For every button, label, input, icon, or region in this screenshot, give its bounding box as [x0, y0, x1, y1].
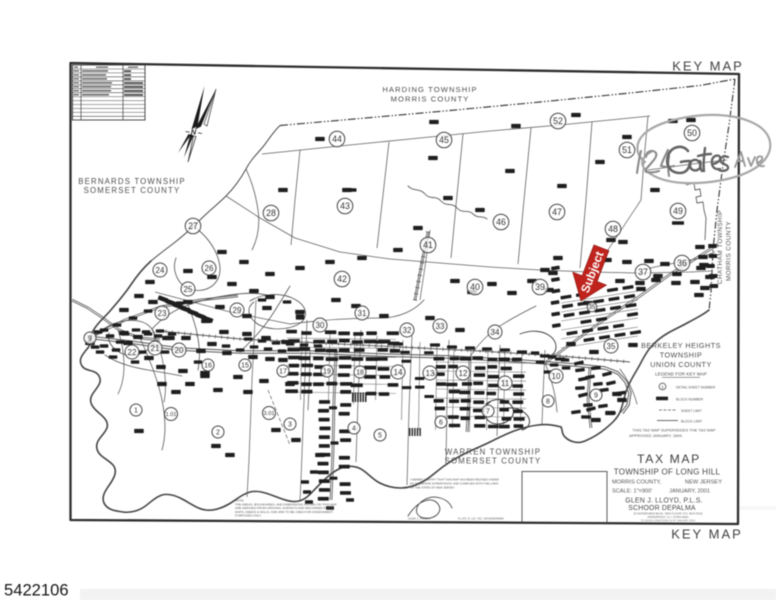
svg-text:10: 10	[552, 372, 561, 381]
svg-text:MORRIS COUNTY,: MORRIS COUNTY,	[612, 480, 662, 486]
svg-text:19: 19	[323, 369, 331, 376]
svg-text:21: 21	[151, 344, 160, 353]
svg-text:5: 5	[378, 433, 382, 440]
svg-text:1: 1	[134, 408, 138, 415]
svg-text:GLEN J. LLOYD, P.L.S.: GLEN J. LLOYD, P.L.S.	[625, 497, 703, 504]
svg-text:33: 33	[436, 322, 445, 331]
svg-text:SCALE: 1"=900': SCALE: 1"=900'	[612, 488, 652, 494]
svg-text:31: 31	[358, 309, 367, 318]
svg-text:PURPOSES ONLY.: PURPOSES ONLY.	[235, 514, 262, 518]
svg-text:30: 30	[316, 321, 325, 330]
svg-text:28: 28	[266, 208, 276, 218]
svg-text:52: 52	[553, 116, 563, 126]
svg-text:4: 4	[352, 426, 356, 433]
svg-text:APPROVED JANUARY, 1894.: APPROVED JANUARY, 1894.	[629, 433, 683, 438]
svg-text:23: 23	[158, 309, 167, 318]
svg-text:11: 11	[501, 379, 510, 388]
svg-text:SOMERSET COUNTY: SOMERSET COUNTY	[445, 457, 542, 466]
svg-text:JANUARY, 2001: JANUARY, 2001	[669, 488, 710, 494]
svg-text:GLEN J. PARENT: GLEN J. PARENT	[408, 517, 431, 521]
svg-text:14: 14	[394, 368, 403, 377]
svg-text:18: 18	[356, 370, 364, 377]
svg-text:26: 26	[205, 264, 214, 273]
svg-text:40: 40	[470, 282, 480, 292]
svg-text:WARREN TOWNSHIP: WARREN TOWNSHIP	[445, 448, 541, 457]
svg-text:BERKELEY HEIGHTS: BERKELEY HEIGHTS	[641, 341, 721, 350]
svg-text:LEGEND FOR KEY MAP: LEGEND FOR KEY MAP	[655, 372, 707, 377]
svg-text:8: 8	[546, 399, 550, 406]
svg-text:17: 17	[279, 369, 287, 376]
svg-text:36: 36	[677, 258, 687, 268]
svg-text:25: 25	[184, 285, 193, 294]
svg-text:KEY MAP: KEY MAP	[672, 59, 744, 74]
svg-text:45: 45	[439, 135, 449, 145]
svg-text:KEY MAP: KEY MAP	[671, 527, 743, 542]
svg-text:N: N	[191, 128, 197, 137]
svg-text:UNION COUNTY: UNION COUNTY	[650, 360, 712, 369]
svg-text:MORRIS COUNTY: MORRIS COUNTY	[391, 95, 470, 104]
svg-text:46: 46	[496, 217, 506, 227]
svg-text:SHEET LIMIT: SHEET LIMIT	[681, 409, 702, 413]
svg-text:16: 16	[204, 363, 212, 370]
svg-text:20: 20	[175, 346, 184, 355]
svg-text:BERNARDS TOWNSHIP: BERNARDS TOWNSHIP	[78, 177, 186, 186]
svg-text:47: 47	[552, 207, 562, 217]
svg-text:9: 9	[594, 393, 598, 400]
svg-text:41: 41	[423, 240, 433, 250]
svg-text:NEW JERSEY: NEW JERSEY	[685, 480, 722, 486]
svg-text:37: 37	[638, 267, 648, 277]
svg-text:1.01: 1.01	[166, 412, 177, 418]
svg-text:SOMERSET COUNTY: SOMERSET COUNTY	[84, 186, 181, 195]
svg-text:51: 51	[622, 145, 632, 155]
svg-text:22: 22	[128, 348, 137, 357]
svg-text:TAX MAP: TAX MAP	[637, 452, 701, 466]
svg-text:DETAIL SHEET NUMBER: DETAIL SHEET NUMBER	[676, 385, 716, 389]
svg-text:TO SVON CONSTIONS 10 ST JANUAR: TO SVON CONSTIONS 10 ST JANUARY 2011	[641, 519, 696, 523]
svg-text:THIS TAX MAP SUPERSEDES TH: THIS TAX MAP SUPERSEDES THE TAX MAP	[632, 428, 715, 433]
svg-text:BLOCK NUMBER: BLOCK NUMBER	[676, 398, 704, 402]
svg-text:35: 35	[589, 305, 596, 311]
svg-text:2: 2	[216, 430, 220, 437]
svg-text:35: 35	[607, 342, 616, 351]
svg-text:27: 27	[188, 221, 198, 231]
svg-text:50: 50	[687, 128, 697, 138]
svg-text:TOWNSHIP OF LONG HILL: TOWNSHIP OF LONG HILL	[614, 468, 721, 477]
svg-text:6: 6	[439, 420, 443, 427]
svg-text:48: 48	[608, 224, 618, 234]
svg-text:PARSIPPANY, N.J. 07054-0900: PARSIPPANY, N.J. 07054-0900	[648, 515, 689, 519]
svg-text:3: 3	[288, 422, 292, 429]
svg-text:42: 42	[337, 274, 347, 284]
svg-text:CHATHAM TOWNSHIP: CHATHAM TOWNSHIP	[717, 210, 724, 284]
svg-text:34: 34	[491, 328, 500, 337]
svg-text:15: 15	[241, 363, 249, 370]
svg-text:MORRIS COUNTY: MORRIS COUNTY	[726, 221, 733, 281]
svg-text:HARDING TOWNSHIP: HARDING TOWNSHIP	[382, 85, 477, 94]
svg-text:32: 32	[403, 326, 412, 335]
svg-text:9: 9	[88, 336, 92, 343]
svg-text:N.J.P.L.S. LIC. NO. 24GS030: N.J.P.L.S. LIC. NO. 24GS03034900	[458, 517, 504, 521]
svg-text:44: 44	[332, 134, 342, 144]
svg-text:3.01: 3.01	[264, 411, 275, 417]
svg-text:OF THE STATE OF NEW JERSE: OF THE STATE OF NEW JERSEY.	[410, 486, 455, 490]
svg-text:43: 43	[340, 201, 350, 211]
svg-text:TOWNSHIP: TOWNSHIP	[660, 351, 703, 360]
svg-text:7: 7	[486, 409, 490, 416]
svg-text:12: 12	[459, 369, 468, 378]
svg-text:24: 24	[156, 266, 165, 275]
svg-text:39: 39	[535, 282, 545, 292]
svg-text:49: 49	[673, 206, 683, 216]
svg-text:29: 29	[233, 306, 242, 315]
svg-text:13: 13	[426, 369, 435, 378]
svg-text:BLOCK LIMIT: BLOCK LIMIT	[681, 419, 702, 423]
svg-text:5422106: 5422106	[4, 581, 69, 600]
